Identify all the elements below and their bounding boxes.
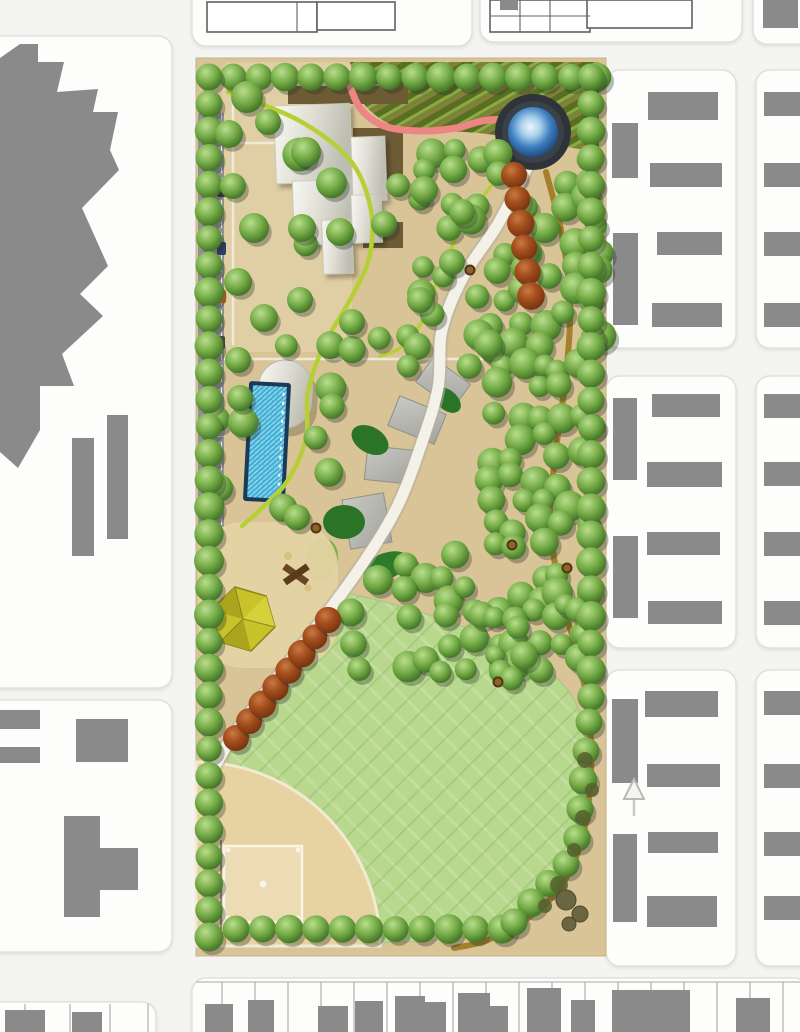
building-footprint xyxy=(458,993,490,1032)
building-footprint xyxy=(764,601,800,625)
building-footprint xyxy=(657,232,722,255)
building-footprint xyxy=(652,394,720,417)
building-footprint xyxy=(571,1000,595,1032)
shrub xyxy=(575,810,591,826)
building-footprint xyxy=(205,1004,233,1032)
site-plan-svg xyxy=(0,0,800,1032)
building-footprint xyxy=(764,764,800,788)
building-footprint xyxy=(107,415,128,539)
building-footprint xyxy=(490,1006,508,1032)
building-footprint xyxy=(764,303,800,327)
building-footprint xyxy=(764,691,800,715)
building-footprint xyxy=(647,764,720,787)
building-footprint xyxy=(612,699,638,783)
building-footprint xyxy=(0,710,40,729)
building-footprint xyxy=(613,536,638,618)
picnic-table xyxy=(312,524,321,533)
building-footprint xyxy=(248,1000,274,1032)
building-footprint xyxy=(650,163,722,187)
building-footprint xyxy=(764,896,800,920)
picnic-table xyxy=(466,266,475,275)
building-footprint xyxy=(72,438,94,556)
building-footprint xyxy=(764,832,800,856)
rock-outcrop xyxy=(556,890,576,910)
picnic-table xyxy=(494,678,503,687)
building-footprint xyxy=(764,394,800,418)
building-footprint xyxy=(764,232,800,256)
building-footprint xyxy=(527,988,561,1032)
building-footprint xyxy=(764,532,800,556)
building-footprint xyxy=(647,896,717,927)
building-footprint xyxy=(424,1002,446,1032)
building-footprint xyxy=(652,303,722,327)
building-outline xyxy=(207,2,317,32)
building-outline xyxy=(317,2,395,30)
shrub xyxy=(538,899,552,913)
building-footprint xyxy=(645,691,718,717)
building-footprint xyxy=(612,990,690,1032)
building-footprint xyxy=(764,462,800,486)
building-footprint xyxy=(648,92,718,120)
building-footprint xyxy=(764,163,800,187)
building-footprint xyxy=(0,747,40,763)
rock-outcrop xyxy=(562,917,576,931)
site-plan-canvas xyxy=(0,0,800,1032)
shrub xyxy=(567,843,581,857)
pitchers-mound xyxy=(260,881,267,888)
building-footprint xyxy=(764,92,800,116)
building-footprint xyxy=(76,719,128,762)
building-footprint xyxy=(100,848,138,890)
building-footprint xyxy=(355,1001,383,1032)
picnic-table xyxy=(508,541,517,550)
building-footprint xyxy=(64,816,100,917)
shrub xyxy=(585,783,599,797)
building-footprint xyxy=(318,1006,348,1032)
building-outline xyxy=(587,0,692,28)
shrub xyxy=(577,752,593,768)
building-footprint xyxy=(613,834,637,922)
building-footprint xyxy=(648,832,718,853)
building-footprint xyxy=(613,233,638,325)
picnic-table xyxy=(563,564,572,573)
building-footprint xyxy=(612,123,638,178)
building-footprint xyxy=(395,996,425,1032)
building-footprint xyxy=(763,0,798,28)
building-footprint xyxy=(647,532,720,555)
building-footprint xyxy=(736,998,770,1032)
building-footprint xyxy=(613,398,637,480)
building-footprint xyxy=(648,601,722,624)
building-footprint xyxy=(647,462,722,487)
